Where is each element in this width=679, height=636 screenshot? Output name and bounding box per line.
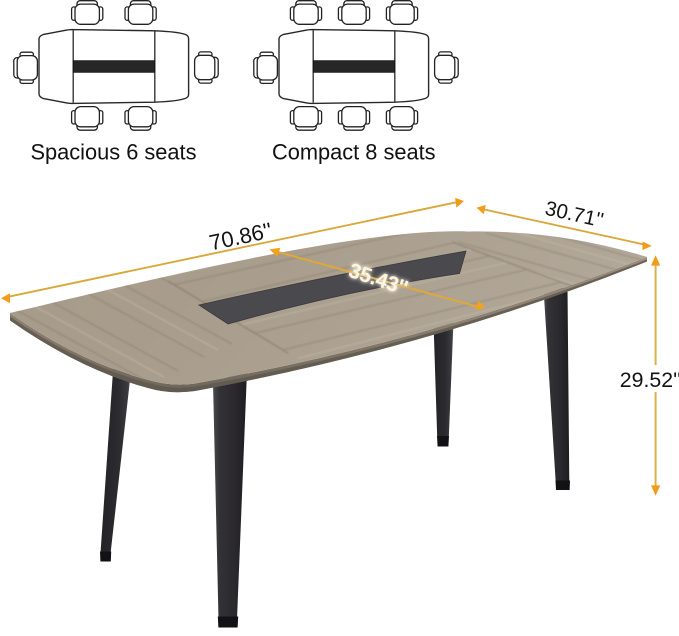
svg-text:Spacious 6 seats: Spacious 6 seats xyxy=(31,140,197,165)
svg-text:Compact 8 seats: Compact 8 seats xyxy=(272,140,436,165)
svg-text:30.71'': 30.71'' xyxy=(543,197,606,232)
svg-text:70.86'': 70.86'' xyxy=(207,218,274,256)
svg-text:29.52'': 29.52'' xyxy=(620,368,679,392)
